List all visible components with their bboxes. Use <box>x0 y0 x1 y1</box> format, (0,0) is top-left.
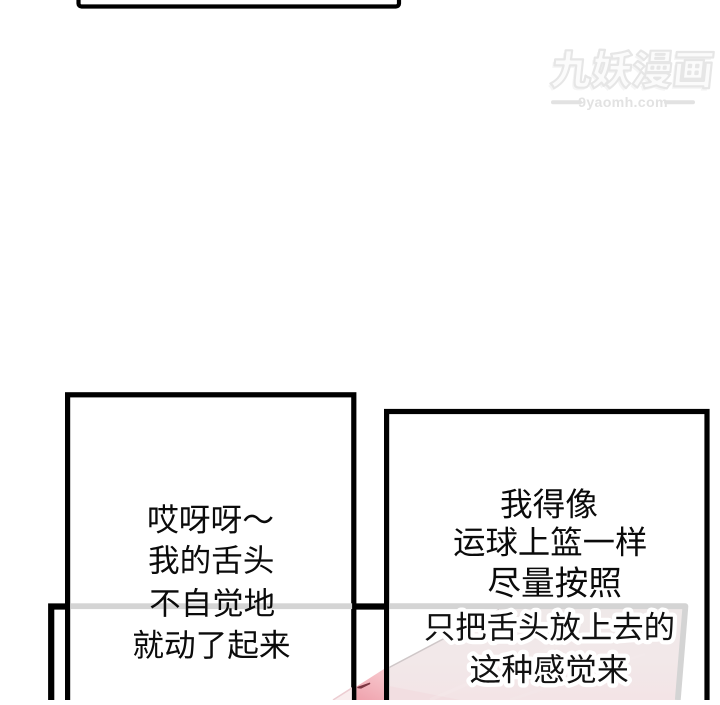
svg-text:9yaomh.com: 9yaomh.com <box>578 95 668 111</box>
